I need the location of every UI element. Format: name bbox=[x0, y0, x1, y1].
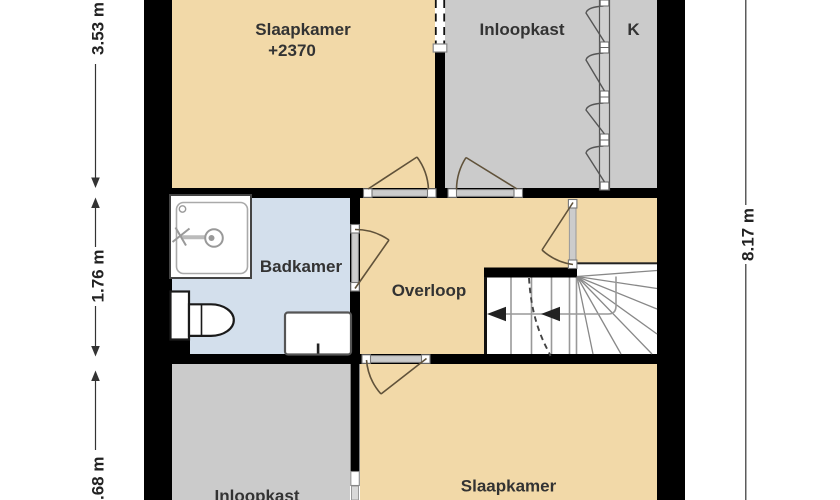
svg-text:Inloopkast: Inloopkast bbox=[214, 487, 299, 500]
svg-text:Slaapkamer: Slaapkamer bbox=[461, 477, 557, 496]
svg-text:Slaapkamer: Slaapkamer bbox=[255, 20, 351, 39]
svg-text:K: K bbox=[627, 20, 640, 39]
svg-text:Inloopkast: Inloopkast bbox=[479, 20, 564, 39]
svg-text:+2370: +2370 bbox=[268, 41, 316, 60]
svg-text:8.17 m: 8.17 m bbox=[739, 208, 758, 261]
svg-text:Badkamer: Badkamer bbox=[260, 257, 343, 276]
svg-text:1.76 m: 1.76 m bbox=[89, 250, 108, 303]
svg-text:1.68 m: 1.68 m bbox=[89, 457, 108, 500]
svg-text:Overloop: Overloop bbox=[392, 281, 467, 300]
svg-text:3.53 m: 3.53 m bbox=[89, 2, 108, 55]
